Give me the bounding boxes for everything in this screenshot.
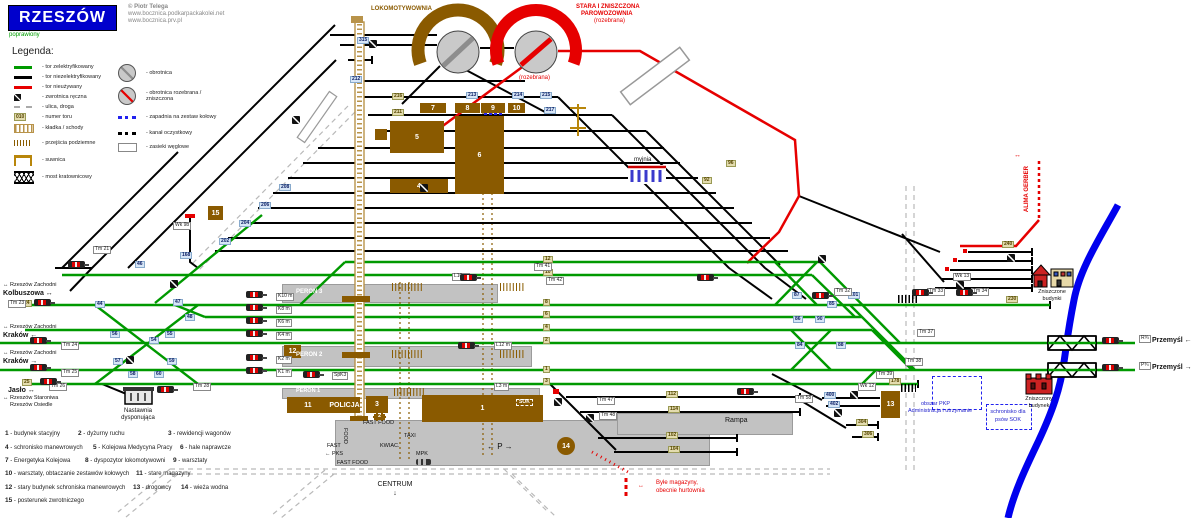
building-key-item: 11 - stare magazyny [136,470,191,477]
building-key-number: 9 [173,457,177,464]
building-key-item: 13 - drogowcy [133,484,171,491]
building-key-number: 15 [5,497,12,504]
rzeszow-station-track-diagram: RZESZÓW poprawiony © Piotr Telega www.bo… [0,0,1200,518]
building-key-item: 15 - posterunek zwrotniczego [5,497,84,504]
building-key-item: 8 - dyspozytor lokomotywowni [85,457,165,464]
building-key-item: 7 - Energetyka Kolejowa [5,457,70,464]
building-key-number: 6 [180,444,184,451]
building-key-item: 6 - hale naprawcze [180,444,231,451]
building-key-number: 10 [5,470,12,477]
building-key-item: 9 - warsztaty [173,457,207,464]
building-key-item: 12 - stary budynek schroniska manewrowyc… [5,484,125,491]
building-key-item: 3 - rewidencji wagonów [168,430,231,437]
building-key-number: 5 [93,444,97,451]
building-key-item: 1 - budynek stacyjny [5,430,60,437]
building-key-number: 12 [5,484,12,491]
building-key-number: 3 [168,430,172,437]
building-key-number: 13 [133,484,140,491]
building-key-number: 11 [136,470,143,477]
building-key-number: 8 [85,457,89,464]
building-key-number: 7 [5,457,9,464]
building-key-item: 4 - schronisko manewrowych [5,444,83,451]
building-key: 1 - budynek stacyjny2 - dyżurny ruchu3 -… [0,0,1200,518]
building-key-number: 2 [78,430,82,437]
building-key-number: 1 [5,430,9,437]
building-key-item: 5 - Kolejowa Medycyna Pracy [93,444,172,451]
building-key-item: 2 - dyżurny ruchu [78,430,125,437]
building-key-item: 10 - warsztaty, obtaczanie zestawów koło… [5,470,129,477]
building-key-item: 14 - wieża wodna [181,484,228,491]
building-key-number: 4 [5,444,9,451]
building-key-number: 14 [181,484,188,491]
